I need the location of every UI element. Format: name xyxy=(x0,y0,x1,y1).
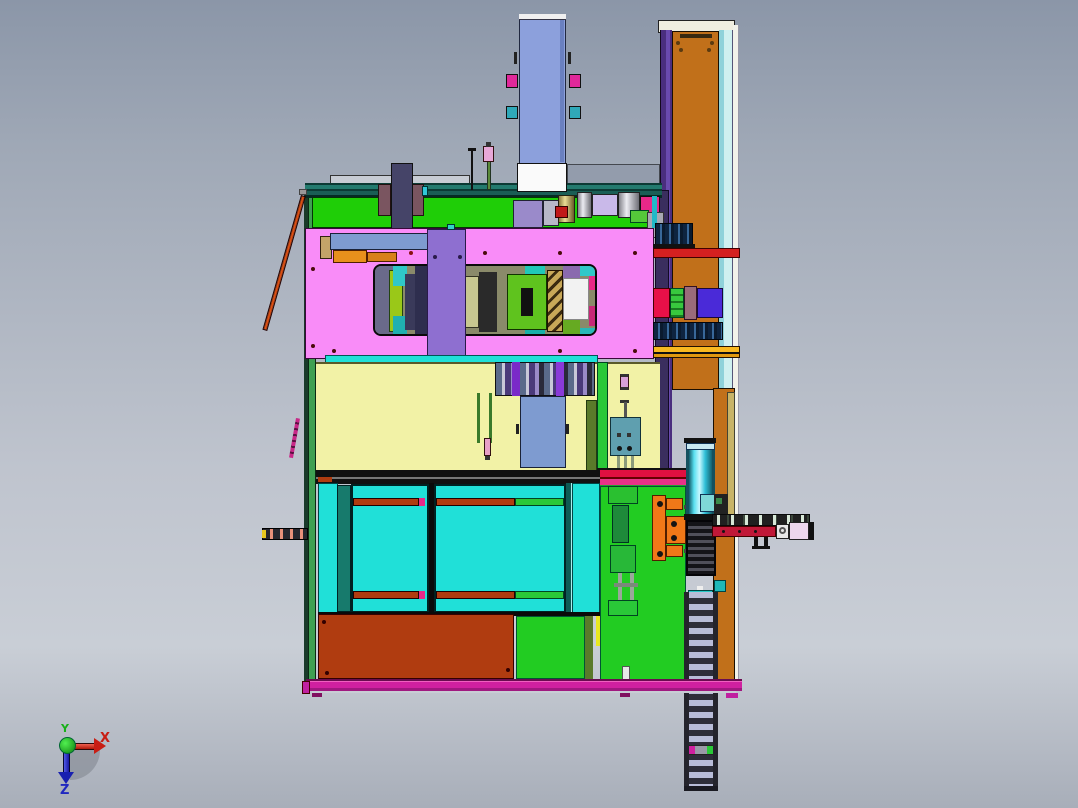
pink-cylinder-top xyxy=(483,146,494,162)
door-right-top-bar xyxy=(436,498,515,506)
mech-part xyxy=(479,272,497,332)
bay-crossbar xyxy=(614,583,638,587)
carriage-circle xyxy=(779,527,786,534)
chain-green-link xyxy=(707,746,713,754)
rail-pink-end xyxy=(789,522,809,540)
white-tick xyxy=(697,586,703,590)
sensor-dot xyxy=(617,446,622,451)
shim-stack xyxy=(495,362,595,396)
bay-darkgreen-block xyxy=(612,505,629,543)
plate-screw xyxy=(558,251,562,255)
panel-screw xyxy=(676,41,680,45)
bearing-stack[interactable] xyxy=(655,223,693,245)
plate-screw xyxy=(409,251,413,255)
right-panel-slot xyxy=(680,34,712,38)
z-axis-label: Z xyxy=(60,783,69,798)
vertical-actuator-column[interactable] xyxy=(519,14,566,164)
lavender-box xyxy=(592,194,618,216)
leaning-rack xyxy=(289,418,300,458)
mech-part xyxy=(563,266,580,278)
teal-sensor-left xyxy=(506,106,518,119)
clamp-bolt xyxy=(671,535,677,541)
x-axis-label: X xyxy=(100,731,110,746)
y-axis-label: Y xyxy=(61,722,69,735)
side-chain-segment[interactable] xyxy=(262,528,308,540)
rail-foot xyxy=(312,693,322,697)
plate-tick xyxy=(516,424,519,434)
shim-violet xyxy=(512,362,520,396)
mech-part xyxy=(589,306,597,326)
brown-clamp xyxy=(378,184,391,216)
right-lower-tan xyxy=(727,392,735,515)
rust-screw xyxy=(506,668,510,672)
violet-box xyxy=(513,200,543,228)
orange-clamp-top-arm xyxy=(666,498,683,510)
shim-violet xyxy=(556,362,564,396)
column-tick xyxy=(568,52,571,64)
base-rail-gray xyxy=(312,691,736,693)
plate-screw xyxy=(633,251,637,255)
z-axis-shaft xyxy=(63,752,70,774)
mech-part xyxy=(563,320,580,336)
pink-cylinder-mid xyxy=(620,374,629,390)
mech-part xyxy=(580,266,597,276)
arm-orange-block2 xyxy=(367,252,397,262)
rail-hook-bar xyxy=(752,546,770,549)
door-right-bottom-green xyxy=(515,591,564,599)
cyan-tab-top xyxy=(447,224,455,230)
door-left-bottom-bar xyxy=(353,591,419,599)
x-axis-shaft xyxy=(74,743,96,750)
chain-yellow-tip xyxy=(262,530,266,538)
rail-dot xyxy=(738,530,741,533)
rail-left-block xyxy=(302,681,310,694)
thin-rod xyxy=(471,150,473,190)
bottom-rust-panel[interactable] xyxy=(318,614,514,679)
red-cone xyxy=(555,206,568,218)
arm-orange-block xyxy=(333,250,367,263)
green-rod xyxy=(489,393,492,443)
teal-sensor-right xyxy=(569,106,581,119)
door-stile xyxy=(337,485,351,612)
bar-cap xyxy=(419,591,425,599)
olive-strip xyxy=(586,400,597,479)
rail-foot xyxy=(726,693,738,698)
sensor-dot xyxy=(617,433,621,437)
plate-screw xyxy=(311,267,315,271)
panel-screw xyxy=(710,41,714,45)
panel-screw xyxy=(679,48,683,52)
yellow-mid-panel[interactable] xyxy=(316,362,660,479)
bar-cap xyxy=(419,498,425,506)
bay-midgreen-block xyxy=(610,545,636,573)
actuator-edge xyxy=(560,20,564,162)
sensor-block[interactable] xyxy=(610,417,641,456)
sensor-dot xyxy=(627,446,632,451)
clamp-bolt xyxy=(657,551,663,557)
plate-screw xyxy=(558,349,562,353)
door-header xyxy=(316,470,600,484)
chain-magenta-link xyxy=(689,746,695,754)
side-window-left[interactable] xyxy=(318,483,338,614)
mechanism-window[interactable] xyxy=(373,264,597,336)
silver-cylinder xyxy=(577,192,592,218)
header-rust-bit xyxy=(318,477,332,482)
origin-sphere xyxy=(59,737,76,754)
rust-screw xyxy=(325,671,329,675)
sensor-rod xyxy=(624,402,627,417)
bay-green-block-bottom xyxy=(608,600,638,616)
thin-rod-top xyxy=(468,148,476,151)
plate-screw xyxy=(332,349,336,353)
pink-cylinder-cap xyxy=(486,142,491,147)
mech-roller xyxy=(547,270,563,332)
mech-gripper-slot xyxy=(521,288,533,316)
plate-screw xyxy=(311,344,315,348)
leaning-stick[interactable] xyxy=(262,195,305,331)
center-column[interactable] xyxy=(391,163,413,229)
green-rod xyxy=(477,393,480,443)
pink-tip-cap xyxy=(485,456,490,460)
column-tick xyxy=(514,52,517,64)
mauve-block xyxy=(684,286,697,320)
door-right-bottom-bar xyxy=(436,591,515,599)
plate-screw xyxy=(633,349,637,353)
pink-tip-rod xyxy=(484,438,491,456)
chain-end-cap xyxy=(684,786,718,791)
rust-screw xyxy=(322,620,326,624)
rail-dot xyxy=(754,530,757,533)
bay-white-cyl xyxy=(622,666,630,680)
clamp-bolt xyxy=(671,521,677,527)
door-left-top-bar xyxy=(353,498,419,506)
panel-screw xyxy=(707,48,711,52)
white-box[interactable] xyxy=(517,163,567,192)
teal-bit xyxy=(714,580,726,592)
mech-white-block xyxy=(563,278,589,320)
purple-screw xyxy=(433,255,437,259)
cylinder-cap xyxy=(686,443,715,450)
mech-part xyxy=(405,274,415,330)
pink-sensor-left xyxy=(506,74,518,88)
door-right-top-green xyxy=(515,498,564,506)
pink-sensor-right xyxy=(569,74,581,88)
green-stick xyxy=(487,158,491,190)
crimson-block[interactable] xyxy=(653,288,670,318)
mech-part xyxy=(525,330,545,336)
orange-double-bar xyxy=(653,346,740,358)
base-rail-main[interactable] xyxy=(306,681,742,688)
bottom-green-panel[interactable] xyxy=(516,616,585,679)
triad-shadow xyxy=(70,750,100,780)
bay-green-top xyxy=(608,486,638,504)
rail-end-cap xyxy=(809,522,814,540)
orange-clamp-bottom-arm xyxy=(666,545,683,557)
cyan-tab xyxy=(422,186,428,196)
plate-tick xyxy=(566,424,569,434)
plate-screw xyxy=(483,251,487,255)
mech-part xyxy=(525,266,545,274)
steel-blue-plate[interactable] xyxy=(520,396,566,468)
rail-dot xyxy=(722,530,725,533)
side-window-right[interactable] xyxy=(572,483,600,614)
green-ribbed-block xyxy=(670,288,684,318)
sensor-dot xyxy=(627,433,631,437)
cad-viewport[interactable]: X Y Z xyxy=(0,0,1078,808)
roller-row[interactable] xyxy=(653,322,723,340)
clamp-bolt xyxy=(657,501,663,507)
horizontal-arm[interactable] xyxy=(330,233,433,250)
actuator-top-cap xyxy=(519,14,566,20)
rail-green-bit xyxy=(716,498,722,504)
stick-top-bit xyxy=(299,189,307,195)
bottom-olive-strip xyxy=(585,616,593,679)
red-cross-bar[interactable] xyxy=(653,248,740,258)
rear-frame-top xyxy=(567,164,660,184)
blueviolet-block[interactable] xyxy=(697,288,723,318)
rail-foot xyxy=(620,693,630,697)
purple-screw xyxy=(458,255,462,259)
